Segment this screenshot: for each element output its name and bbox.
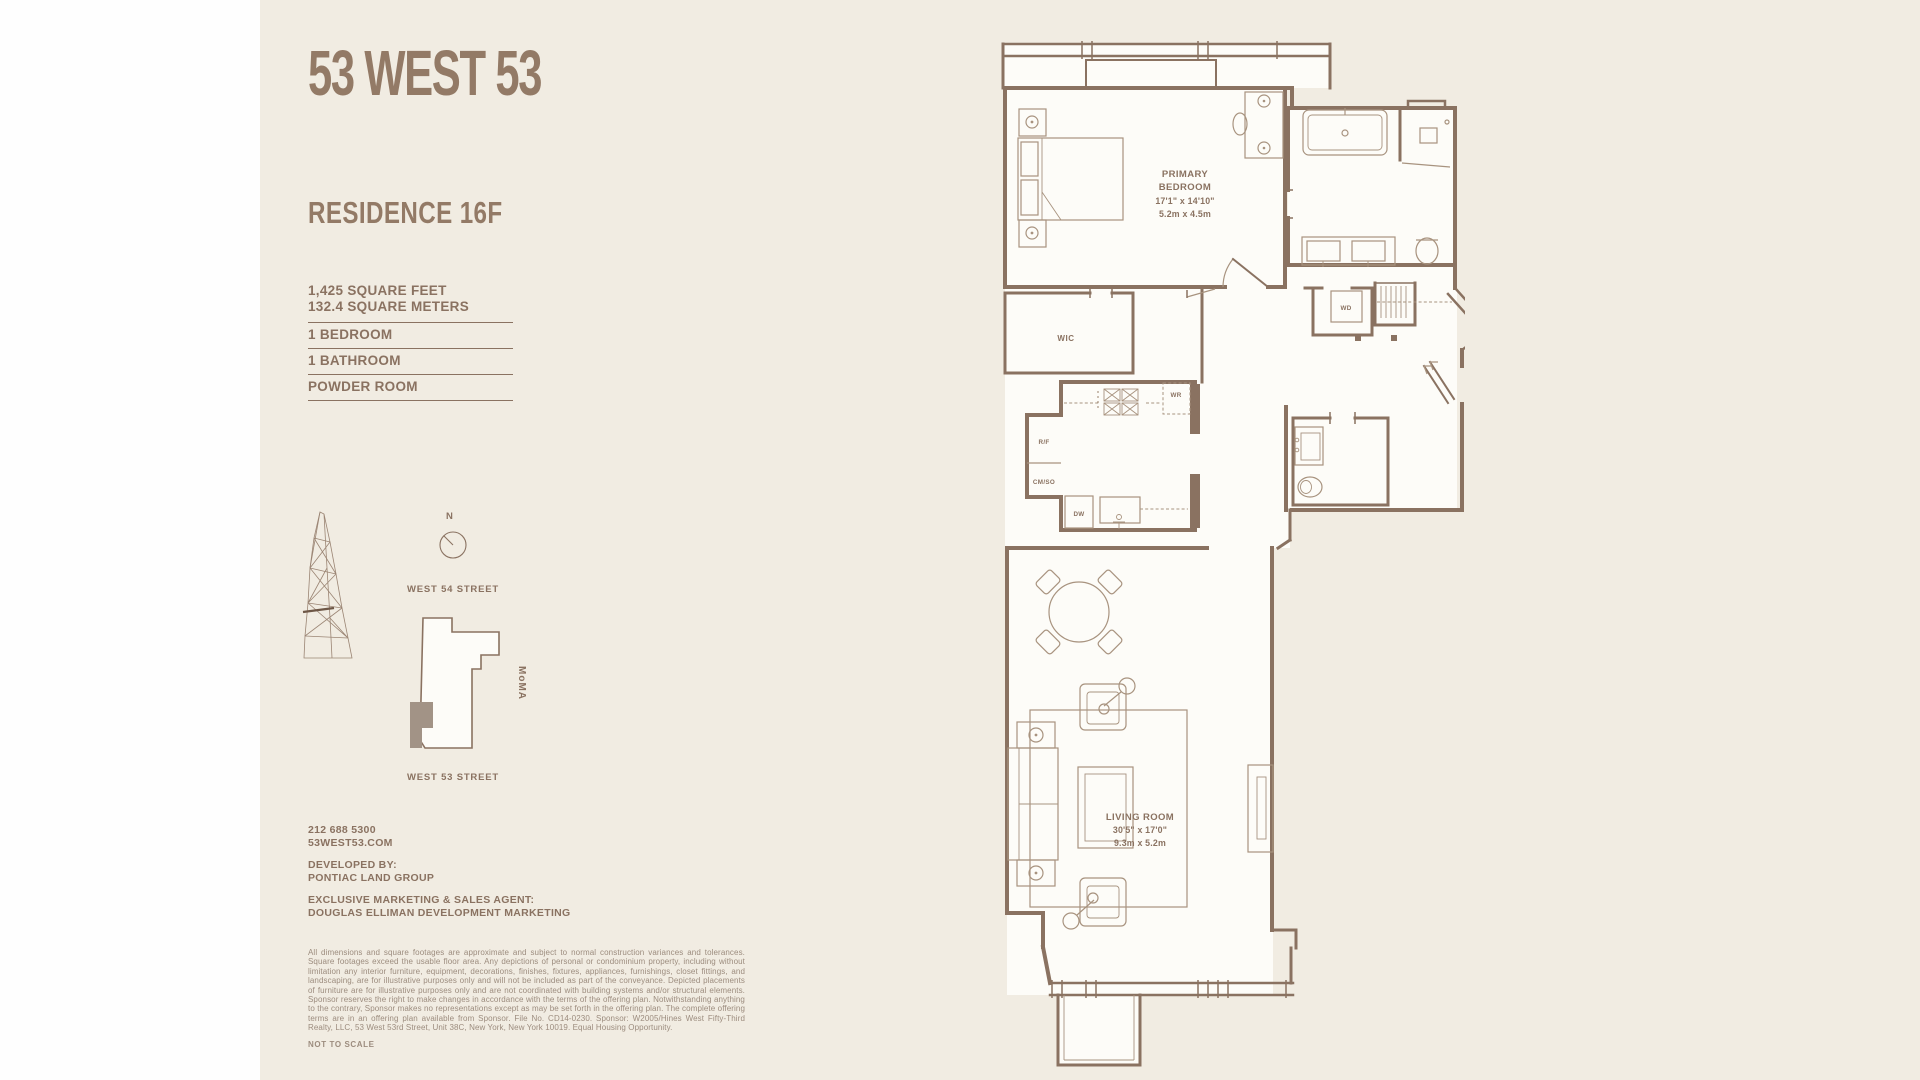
spec-powder-room: POWDER ROOM bbox=[308, 375, 513, 401]
floor-plan: PRIMARY BEDROOM 17'1" x 14'10" 5.2m x 4.… bbox=[1000, 38, 1465, 1068]
agent-label: EXCLUSIVE MARKETING & SALES AGENT: bbox=[308, 894, 571, 907]
area-feet: 1,425 SQUARE FEET bbox=[308, 283, 513, 299]
contact-block: 212 688 5300 53WEST53.COM DEVELOPED BY: … bbox=[308, 824, 571, 929]
spec-area: 1,425 SQUARE FEET 132.4 SQUARE METERS bbox=[308, 283, 513, 323]
spec-bedroom: 1 BEDROOM bbox=[308, 323, 513, 349]
primary-bedroom-dims-m: 5.2m x 4.5m bbox=[1159, 209, 1211, 219]
website: 53WEST53.COM bbox=[308, 837, 571, 850]
building-lot-outline bbox=[420, 618, 499, 748]
area-meters: 132.4 SQUARE METERS bbox=[308, 299, 513, 315]
specs-list: 1,425 SQUARE FEET 132.4 SQUARE METERS 1 … bbox=[308, 283, 513, 401]
legal-disclaimer: All dimensions and square footages are a… bbox=[308, 948, 745, 1033]
phone-number: 212 688 5300 bbox=[308, 824, 571, 837]
compass-icon bbox=[436, 528, 470, 562]
refrigerator-label: R/F bbox=[1038, 439, 1049, 446]
page-title: 53 WEST 53 bbox=[308, 36, 541, 110]
building-illustration bbox=[300, 508, 360, 660]
developer-name: PONTIAC LAND GROUP bbox=[308, 872, 571, 885]
cmso-label: CM/SO bbox=[1033, 479, 1055, 486]
wr-label: WR bbox=[1170, 392, 1181, 399]
compass-label: N bbox=[446, 511, 453, 522]
living-room-dims-ft: 30'5" x 17'0" bbox=[1113, 825, 1167, 835]
site-map bbox=[405, 610, 515, 755]
wic-label: WIC bbox=[1057, 334, 1074, 343]
landmark-label-moma: MoMA bbox=[516, 666, 527, 700]
primary-bedroom-dims-ft: 17'1" x 14'10" bbox=[1155, 196, 1214, 206]
residence-title: RESIDENCE 16F bbox=[308, 195, 503, 231]
street-label-west-53: WEST 53 STREET bbox=[407, 772, 499, 783]
primary-bedroom-label-1: PRIMARY bbox=[1162, 169, 1209, 180]
agent-name: DOUGLAS ELLIMAN DEVELOPMENT MARKETING bbox=[308, 907, 571, 920]
dishwasher-label: DW bbox=[1073, 511, 1084, 518]
developed-by-label: DEVELOPED BY: bbox=[308, 859, 571, 872]
planter bbox=[1086, 60, 1216, 87]
living-room-label: LIVING ROOM bbox=[1106, 812, 1174, 823]
spec-bathroom: 1 BATHROOM bbox=[308, 349, 513, 375]
living-room-dims-m: 9.3m x 5.2m bbox=[1114, 838, 1166, 848]
washer-dryer-label: WD bbox=[1340, 305, 1351, 312]
not-to-scale-note: NOT TO SCALE bbox=[308, 1040, 375, 1049]
street-label-west-54: WEST 54 STREET bbox=[407, 584, 499, 595]
primary-bedroom-label-2: BEDROOM bbox=[1159, 182, 1211, 193]
